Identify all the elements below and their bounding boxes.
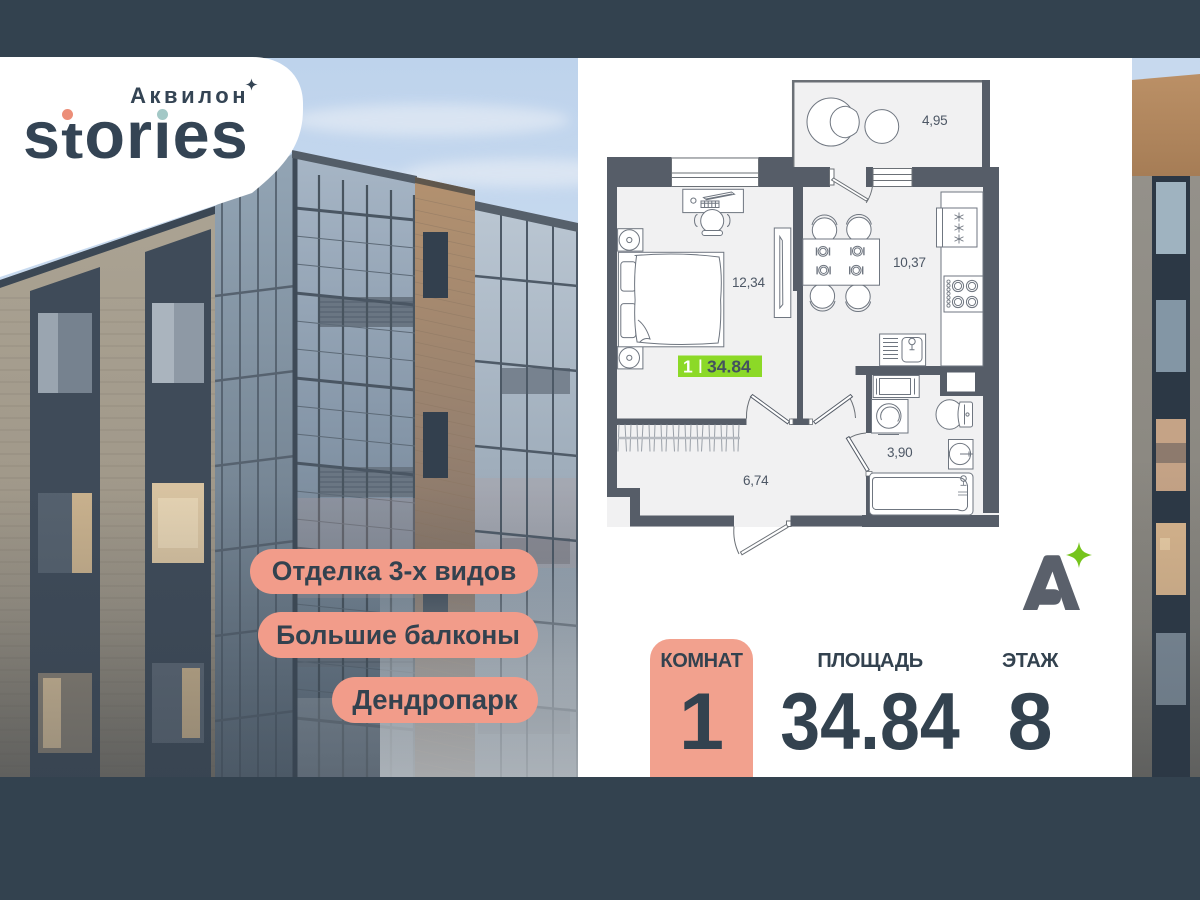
svg-text:10,37: 10,37 xyxy=(893,255,926,270)
svg-text:12,34: 12,34 xyxy=(732,275,765,290)
svg-text:34.84: 34.84 xyxy=(707,357,751,377)
svg-text:1: 1 xyxy=(683,357,693,377)
svg-text:4,95: 4,95 xyxy=(922,113,947,128)
svg-text:3,90: 3,90 xyxy=(887,445,912,460)
svg-text:6,74: 6,74 xyxy=(743,473,769,488)
